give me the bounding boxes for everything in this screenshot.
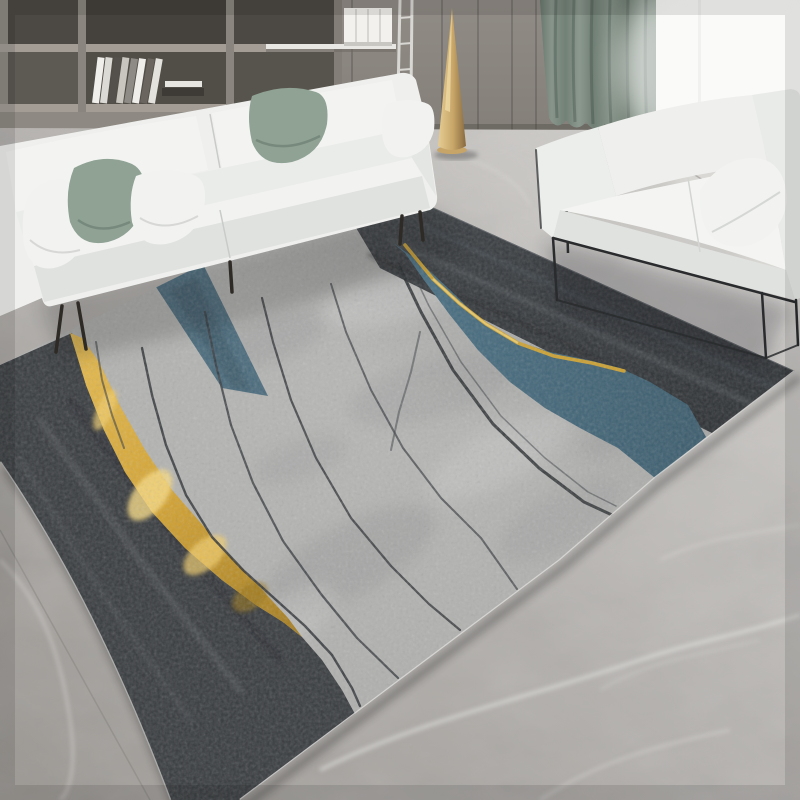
shelf-cavity [8, 52, 78, 104]
shelf-divider [78, 0, 86, 112]
scene-svg [0, 0, 800, 800]
living-room-photo [0, 0, 800, 800]
book-flat [162, 88, 204, 96]
sofa-leg [230, 262, 232, 292]
wall-shelf-shadow [266, 49, 396, 52]
sofa-leg [400, 216, 402, 244]
shelf-divider [226, 0, 234, 112]
book-flat [165, 81, 202, 87]
